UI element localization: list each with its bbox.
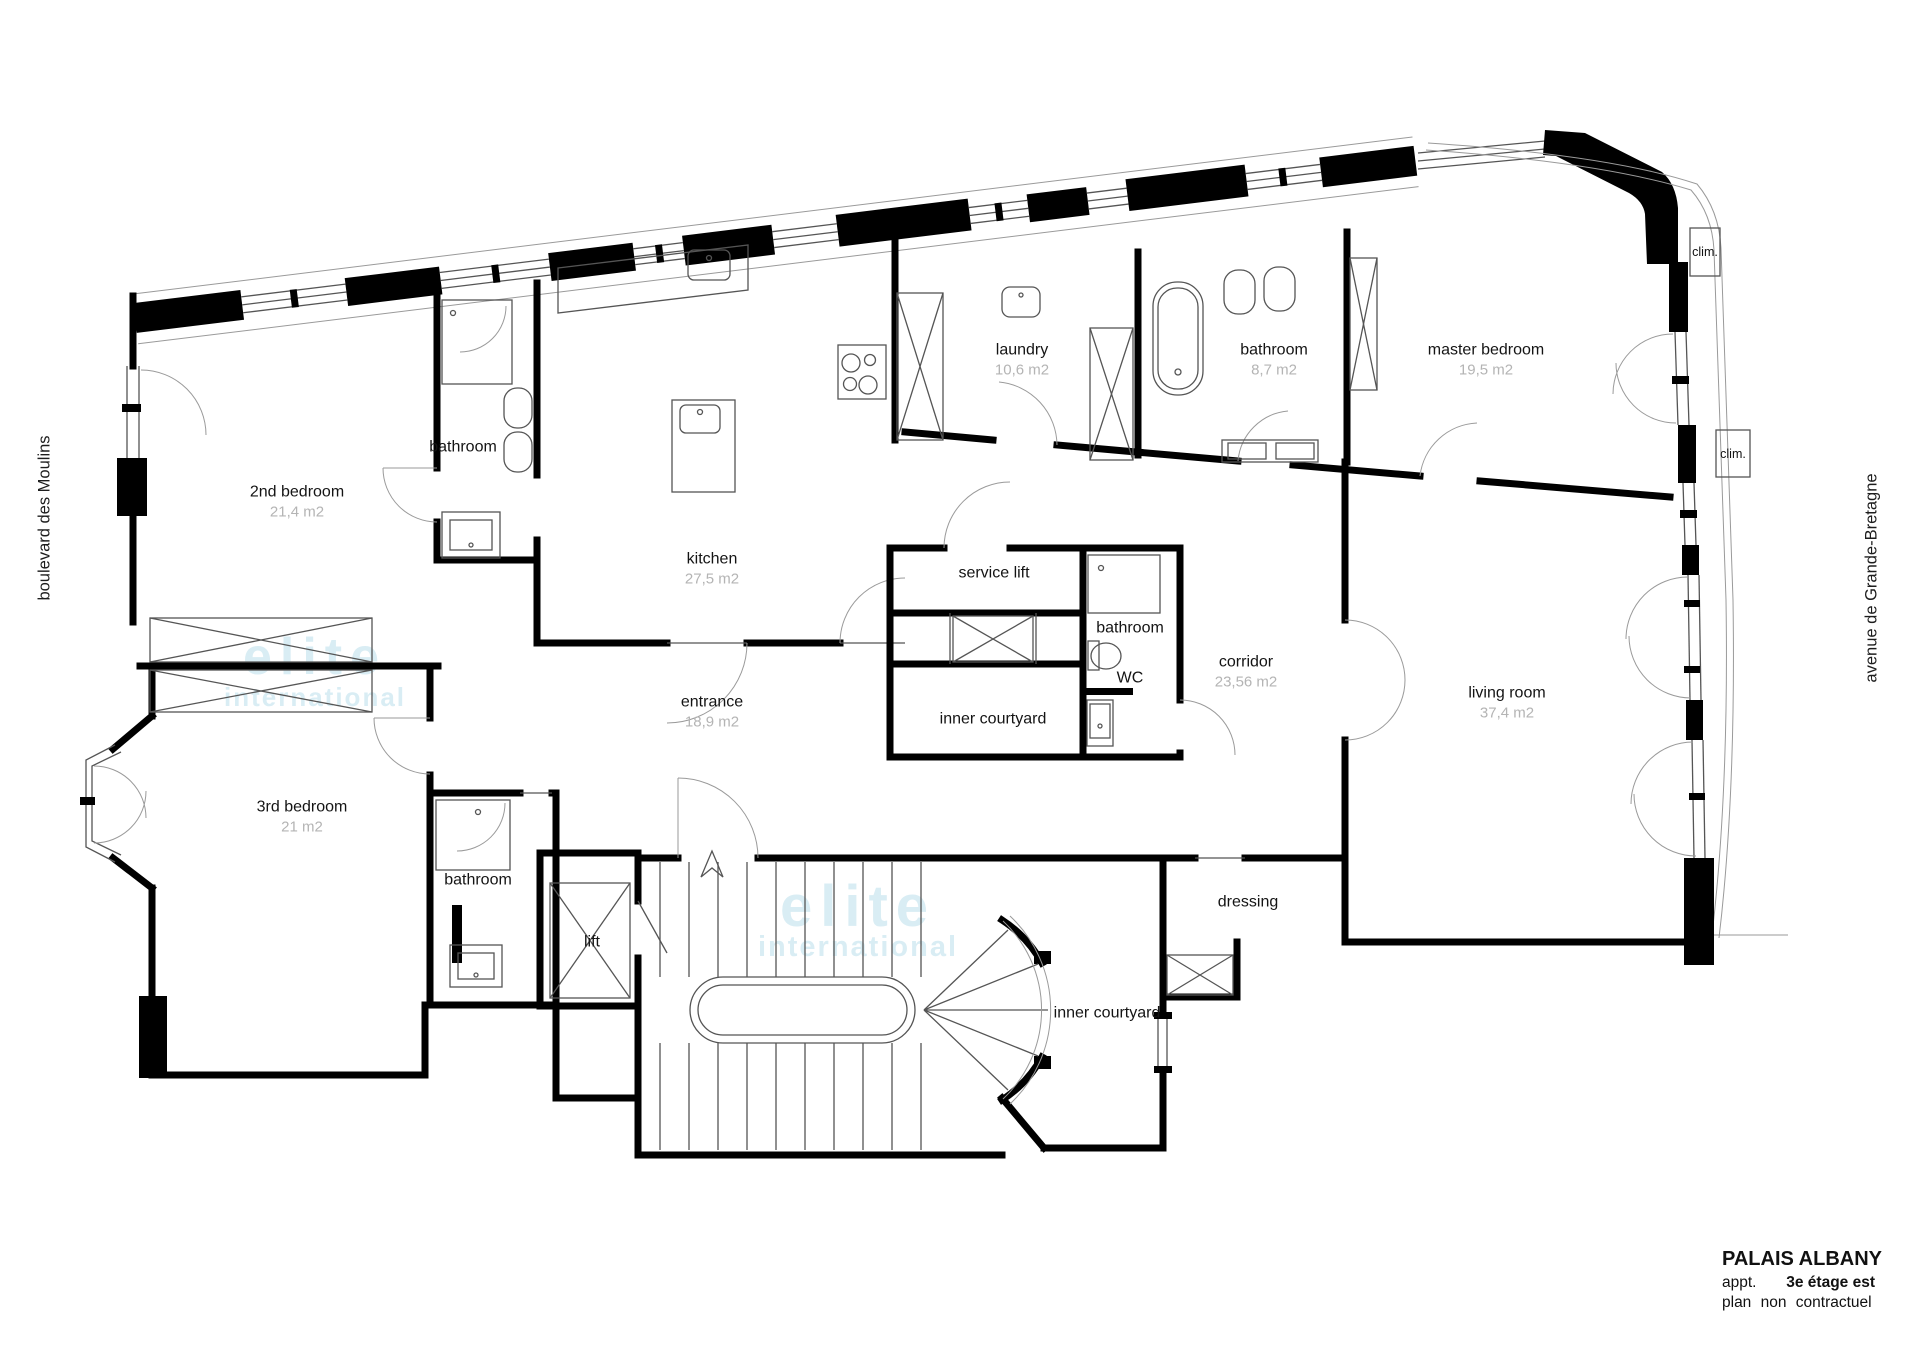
room-label-living-room: living room 37,4 m2 bbox=[1468, 684, 1545, 723]
street-label-right: avenue de Grande-Bretagne bbox=[1863, 473, 1882, 682]
room-label-lift: lift bbox=[584, 933, 600, 952]
room-area: 27,5 m2 bbox=[685, 570, 739, 589]
project-title: PALAIS ALBANY bbox=[1722, 1248, 1875, 1271]
clim-unit-label: clim. bbox=[1692, 245, 1718, 259]
apartment-label: appt. bbox=[1722, 1274, 1756, 1292]
floor-plan-drawing bbox=[0, 0, 1920, 1358]
room-area: 21 m2 bbox=[257, 818, 348, 837]
room-area: 10,6 m2 bbox=[995, 361, 1049, 380]
room-area: 19,5 m2 bbox=[1428, 361, 1545, 380]
apartment-line: appt. 3e étage est bbox=[1722, 1274, 1875, 1292]
room-area: 21,4 m2 bbox=[250, 503, 344, 522]
floor-plan-page: { "plan": { "streets": { "left": "boulev… bbox=[0, 0, 1920, 1358]
room-area: 18,9 m2 bbox=[681, 713, 743, 732]
room-label-kitchen: kitchen 27,5 m2 bbox=[685, 550, 739, 589]
room-label-third-bathroom: bathroom bbox=[444, 871, 512, 890]
room-label-inner-courtyard-lower: inner courtyard bbox=[1049, 1004, 1165, 1023]
room-label-third-bedroom: 3rd bedroom 21 m2 bbox=[257, 798, 348, 837]
room-label-dressing: dressing bbox=[1218, 893, 1278, 912]
room-label-central-bathroom: bathroom bbox=[1096, 619, 1164, 638]
title-block: PALAIS ALBANY appt. 3e étage est plan no… bbox=[1722, 1248, 1875, 1312]
fixtures bbox=[436, 245, 1318, 987]
room-label-service-lift: service lift bbox=[958, 564, 1029, 583]
facade-right bbox=[1426, 143, 1788, 965]
facade-top bbox=[132, 137, 1418, 344]
disclaimer-line: plan non contractuel bbox=[1722, 1294, 1875, 1312]
room-label-wc: WC bbox=[1117, 669, 1144, 688]
north-arrow-icon bbox=[701, 851, 723, 877]
room-label-entrance: entrance 18,9 m2 bbox=[681, 693, 743, 732]
clim-unit-label: clim. bbox=[1720, 447, 1746, 461]
spiral-staircase bbox=[660, 862, 1051, 1150]
room-label-second-bathroom: bathroom bbox=[429, 438, 497, 457]
room-area: 8,7 m2 bbox=[1240, 361, 1308, 380]
room-area: 23,56 m2 bbox=[1215, 673, 1278, 692]
room-label-main-bathroom: bathroom 8,7 m2 bbox=[1240, 341, 1308, 380]
apartment-value: 3e étage est bbox=[1786, 1274, 1875, 1292]
room-label-laundry: laundry 10,6 m2 bbox=[995, 341, 1049, 380]
room-area: 37,4 m2 bbox=[1468, 704, 1545, 723]
room-label-inner-courtyard-upper: inner courtyard bbox=[935, 710, 1051, 729]
facade-corner bbox=[1418, 130, 1678, 264]
room-label-master-bedroom: master bedroom 19,5 m2 bbox=[1428, 341, 1545, 380]
room-label-corridor: corridor 23,56 m2 bbox=[1215, 653, 1278, 692]
room-label-second-bedroom: 2nd bedroom 21,4 m2 bbox=[250, 483, 344, 522]
street-label-left: boulevard des Moulins bbox=[36, 435, 55, 600]
closets-and-shafts bbox=[150, 258, 1377, 998]
facade-left bbox=[80, 296, 206, 1078]
